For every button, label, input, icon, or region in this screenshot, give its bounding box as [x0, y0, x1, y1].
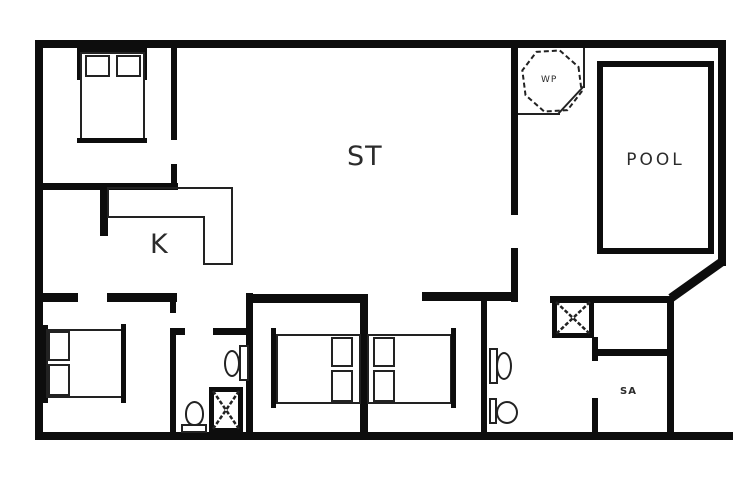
wall-bedroom3-right	[481, 292, 487, 432]
bed1-footboard	[77, 138, 147, 143]
room-label-living: ST	[347, 143, 383, 170]
room-label-kitchen: K	[150, 231, 169, 258]
pillow-icon	[373, 337, 395, 367]
room-label-sauna: SA	[620, 387, 637, 397]
wall-bath1-left-top	[170, 293, 176, 313]
bed4-footboard	[451, 328, 456, 408]
toilet-icon	[239, 345, 249, 381]
pillow-icon	[48, 364, 70, 396]
kitchen-counter-top	[108, 187, 233, 189]
wall-sauna-top	[598, 349, 674, 356]
wall-bedroom1-top-a	[40, 293, 78, 302]
room-label-pool: POOL	[603, 152, 708, 169]
whirlpool-niche-bottom-line	[518, 113, 560, 115]
wall-bedroom2-top	[253, 294, 360, 303]
toilet-bowl-icon	[224, 350, 240, 377]
kitchen-counter-right	[231, 187, 233, 265]
shower-icon	[552, 298, 594, 338]
wall-bedroom1-top-b	[107, 293, 177, 302]
kitchen-counter-inner-h	[108, 216, 205, 218]
pillow-icon	[48, 331, 70, 361]
pillow-icon	[116, 55, 141, 77]
outer-wall-bottom	[35, 432, 733, 440]
wall-bath1-left-main	[170, 328, 176, 432]
kitchen-counter-bottom	[203, 263, 233, 265]
sink-bowl-icon	[185, 401, 204, 426]
outer-wall-left	[35, 40, 43, 440]
kitchen-counter-left-cap	[107, 187, 109, 218]
wall-sauna-right	[667, 296, 674, 432]
wall-bath1-door-jamb	[170, 328, 185, 335]
floor-plan: ST K POOL WP SA	[0, 0, 750, 500]
pillow-icon	[373, 370, 395, 402]
outer-wall-right	[718, 40, 726, 266]
wall-bedroom-tl-right-upper	[171, 48, 177, 140]
wall-st-right-upper	[511, 48, 518, 215]
shower-icon	[209, 387, 243, 433]
wall-bath2-right-lower	[592, 398, 598, 432]
pillow-icon	[85, 55, 110, 77]
bed2-footboard	[121, 324, 126, 403]
bed3-footboard	[271, 328, 276, 408]
wall-bedroom3-top	[422, 292, 518, 301]
whirlpool-niche-diagonal	[558, 86, 584, 114]
outer-wall-diagonal	[671, 261, 723, 298]
sink-bowl-icon	[496, 401, 518, 424]
pillow-icon	[331, 337, 353, 367]
pillow-icon	[331, 370, 353, 402]
whirlpool-niche-right-line	[583, 48, 585, 88]
toilet-bowl-icon	[496, 352, 512, 380]
room-label-whirlpool: WP	[541, 76, 557, 85]
kitchen-counter-inner-v	[203, 216, 205, 265]
